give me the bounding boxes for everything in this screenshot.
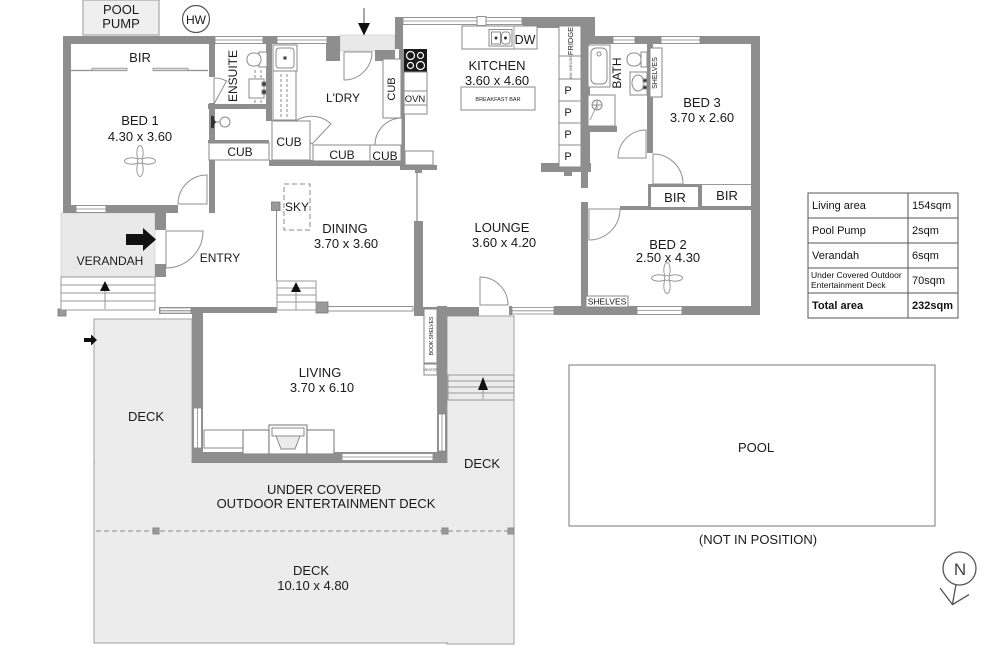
- svg-text:Verandah: Verandah: [812, 250, 859, 262]
- svg-text:BIR: BIR: [664, 190, 686, 205]
- svg-text:LOUNGE: LOUNGE: [475, 220, 530, 235]
- svg-text:2.50 x 4.30: 2.50 x 4.30: [636, 250, 700, 265]
- svg-text:4.30 x 3.60: 4.30 x 3.60: [108, 129, 172, 144]
- svg-text:3.70 x 6.10: 3.70 x 6.10: [290, 380, 354, 395]
- svg-text:232sqm: 232sqm: [912, 300, 953, 312]
- svg-text:UNDER COVERED: UNDER COVERED: [267, 482, 381, 497]
- svg-text:SKY: SKY: [285, 200, 309, 214]
- svg-text:DECK: DECK: [293, 563, 329, 578]
- svg-text:Living area: Living area: [812, 200, 867, 212]
- svg-text:SHELVES: SHELVES: [652, 57, 659, 89]
- svg-text:HW: HW: [186, 13, 207, 27]
- svg-text:ENTRY: ENTRY: [200, 251, 240, 265]
- svg-text:2sqm: 2sqm: [912, 225, 939, 237]
- svg-text:Total area: Total area: [812, 300, 864, 312]
- svg-text:DW: DW: [515, 33, 536, 47]
- svg-text:BREAKFAST BAR: BREAKFAST BAR: [475, 97, 520, 103]
- svg-text:6sqm: 6sqm: [912, 250, 939, 262]
- svg-text:VERANDAH: VERANDAH: [77, 254, 144, 268]
- svg-text:(NOT IN POSITION): (NOT IN POSITION): [699, 532, 817, 547]
- svg-text:BED 1: BED 1: [121, 113, 159, 128]
- svg-text:POOL: POOL: [103, 2, 139, 17]
- svg-text:70sqm: 70sqm: [912, 275, 945, 287]
- svg-text:3.70 x 2.60: 3.70 x 2.60: [670, 110, 734, 125]
- svg-text:CUB: CUB: [386, 77, 398, 100]
- svg-text:154sqm: 154sqm: [912, 200, 951, 212]
- svg-text:SHELVES: SHELVES: [588, 297, 627, 307]
- svg-text:CUB: CUB: [227, 145, 252, 159]
- svg-text:10.10 x 4.80: 10.10 x 4.80: [277, 578, 349, 593]
- svg-text:DINING: DINING: [322, 221, 368, 236]
- svg-text:ENSUITE: ENSUITE: [226, 50, 240, 102]
- svg-text:OUTDOOR ENTERTAINMENT DECK: OUTDOOR ENTERTAINMENT DECK: [217, 496, 436, 511]
- svg-text:PUMP: PUMP: [102, 16, 140, 31]
- svg-text:3.60 x 4.60: 3.60 x 4.60: [465, 73, 529, 88]
- svg-text:HEATER: HEATER: [424, 368, 438, 372]
- svg-text:OVN: OVN: [405, 94, 426, 105]
- svg-text:BED 3: BED 3: [683, 95, 721, 110]
- svg-text:CUB: CUB: [372, 149, 397, 163]
- svg-text:N: N: [954, 560, 966, 579]
- svg-text:DECK: DECK: [128, 409, 164, 424]
- svg-text:CUB: CUB: [329, 148, 354, 162]
- svg-text:POOL: POOL: [738, 440, 774, 455]
- svg-text:BOOK SHELVES: BOOK SHELVES: [429, 316, 435, 355]
- svg-text:FRIDGE: FRIDGE: [566, 27, 575, 55]
- svg-text:BIR: BIR: [716, 188, 738, 203]
- svg-text:BIR: BIR: [129, 50, 151, 65]
- svg-text:P: P: [564, 129, 571, 141]
- svg-text:Under Covered Outdoor: Under Covered Outdoor: [811, 270, 902, 280]
- svg-text:L'DRY: L'DRY: [326, 91, 360, 105]
- svg-text:DECK: DECK: [464, 456, 500, 471]
- svg-text:P: P: [564, 85, 571, 97]
- svg-text:Pool Pump: Pool Pump: [812, 225, 866, 237]
- svg-text:P: P: [564, 151, 571, 163]
- svg-text:MW SHELVES: MW SHELVES: [569, 55, 573, 79]
- svg-text:P: P: [564, 107, 571, 119]
- svg-text:BATH: BATH: [610, 57, 624, 88]
- svg-text:3.60 x 4.20: 3.60 x 4.20: [472, 235, 536, 250]
- svg-text:KITCHEN: KITCHEN: [468, 58, 525, 73]
- svg-text:LIVING: LIVING: [299, 365, 342, 380]
- svg-text:3.70 x 3.60: 3.70 x 3.60: [314, 236, 378, 251]
- svg-text:Entertainment Deck: Entertainment Deck: [811, 280, 886, 290]
- svg-text:CUB: CUB: [276, 135, 301, 149]
